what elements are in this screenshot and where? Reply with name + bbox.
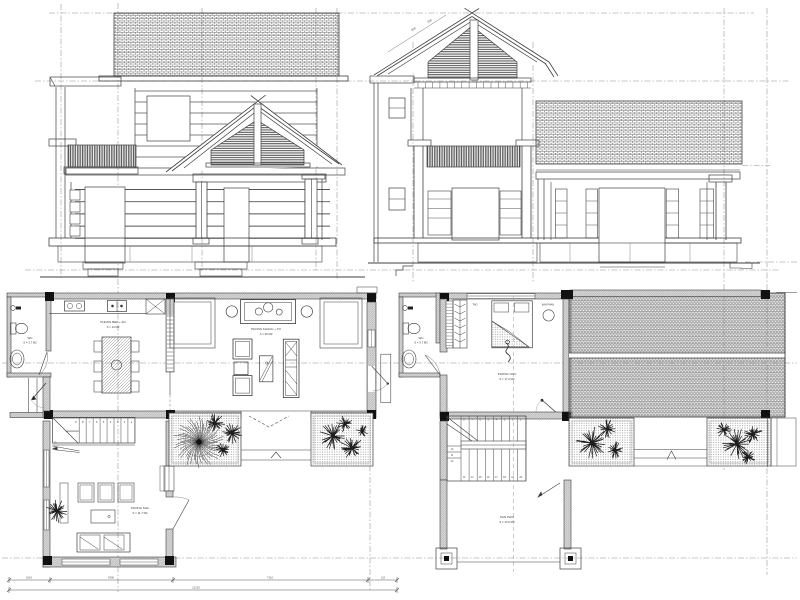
svg-text:PHONG SHC: PHONG SHC (131, 506, 150, 510)
svg-text:7110: 7110 (267, 576, 273, 580)
svg-text:4300: 4300 (108, 576, 115, 580)
svg-text:115: 115 (381, 577, 386, 580)
svg-text:SAN PHOI: SAN PHOI (500, 515, 515, 519)
svg-text:1010: 1010 (26, 576, 33, 580)
svg-text:S = 13 M2: S = 13 M2 (107, 325, 120, 329)
svg-text:S = 11.7 M2: S = 11.7 M2 (133, 511, 148, 515)
svg-text:PHONG KHACH + TO: PHONG KHACH + TO (251, 327, 281, 331)
svg-text:S = 3.7 M2: S = 3.7 M2 (414, 341, 428, 345)
svg-text:WC: WC (28, 336, 34, 340)
svg-text:PHONG BEP + AN: PHONG BEP + AN (100, 320, 125, 324)
svg-text:TAO: TAO (472, 303, 477, 307)
svg-text:12210: 12210 (192, 586, 200, 590)
svg-text:S = 29 M2: S = 29 M2 (260, 332, 273, 336)
svg-text:S = 13.6 M2: S = 13.6 M2 (499, 520, 515, 524)
svg-text:BAN PHAN: BAN PHAN (542, 304, 554, 307)
svg-text:WC: WC (419, 336, 425, 340)
svg-text:S = 3.7 M2: S = 3.7 M2 (23, 341, 37, 345)
svg-text:S = 17.2 M2: S = 17.2 M2 (499, 377, 515, 381)
